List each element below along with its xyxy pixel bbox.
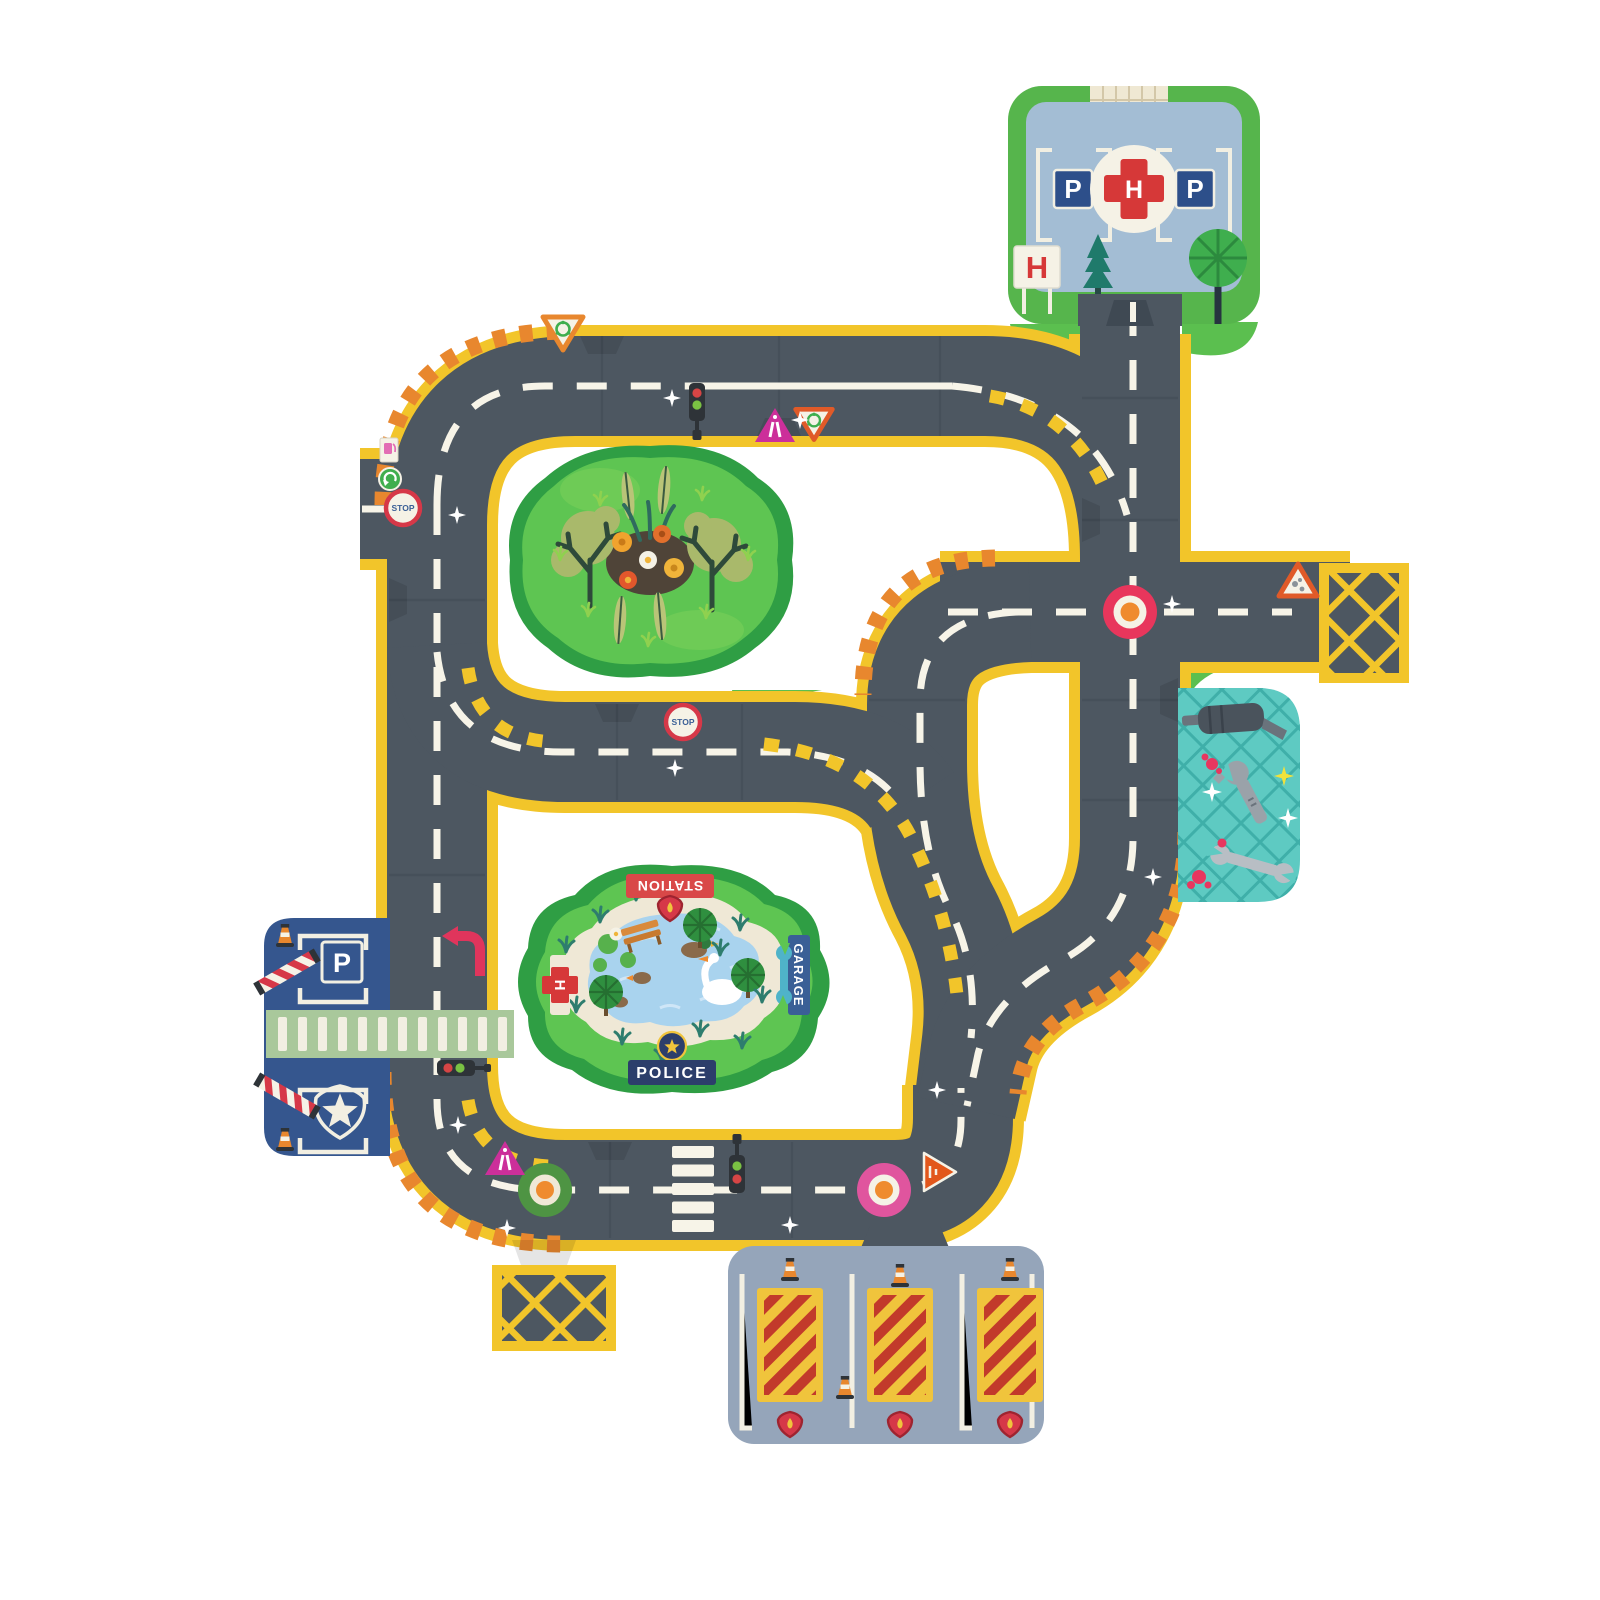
parking-sign: P — [1054, 170, 1092, 208]
parking-sign-label: P — [1064, 174, 1081, 204]
stop-sign: STOP — [666, 705, 700, 739]
ramp-tile-bottom — [497, 1270, 611, 1346]
fire-engine-bay — [867, 1288, 933, 1402]
garage-sign-label: GARAGE — [791, 943, 806, 1006]
roundabout-red — [1103, 585, 1157, 639]
station-sign-label: STATION — [637, 878, 703, 894]
fire-station-tile — [728, 1246, 1044, 1444]
police-parking-tile: P — [253, 0, 390, 1156]
parking-sign-label: P — [1186, 174, 1203, 204]
roundabout-green — [518, 1163, 572, 1217]
hospital-helipad-tile: P H P H — [1008, 86, 1260, 326]
garage-tile — [1178, 688, 1300, 902]
park-pond: STATION GARAGE POLICE H — [518, 865, 830, 1094]
play-mat-illustration: STOP STOP — [0, 0, 1600, 1600]
parking-sign: P — [1176, 170, 1214, 208]
ramp-tile-right — [1324, 568, 1404, 678]
parking-sign: P — [322, 942, 362, 982]
police-sign-label: POLICE — [636, 1065, 708, 1082]
play-mat: STOP STOP — [0, 0, 1600, 1600]
pedestrian-crossing — [266, 1010, 514, 1058]
hospital-road-stub — [1078, 294, 1182, 326]
stop-sign-label: STOP — [672, 717, 695, 727]
fire-engine-bay — [757, 1288, 823, 1402]
recycle-sign — [379, 468, 401, 490]
helipad-cross: H — [1090, 145, 1178, 233]
flower-grove — [509, 445, 793, 677]
garage-direction-sign: GARAGE — [776, 935, 810, 1015]
station-direction-sign: STATION — [626, 874, 714, 898]
pond-h-label: H — [551, 980, 568, 991]
roundabout-pink — [857, 1163, 911, 1217]
fire-engine-bay — [977, 1288, 1043, 1402]
stop-sign-label: STOP — [392, 503, 415, 513]
hospital-sign-label: H — [1026, 250, 1048, 285]
stop-sign: STOP — [386, 491, 420, 525]
helipad-label: H — [1125, 176, 1143, 204]
parking-sign-label: P — [333, 948, 351, 978]
fuel-station-sign — [380, 438, 398, 462]
